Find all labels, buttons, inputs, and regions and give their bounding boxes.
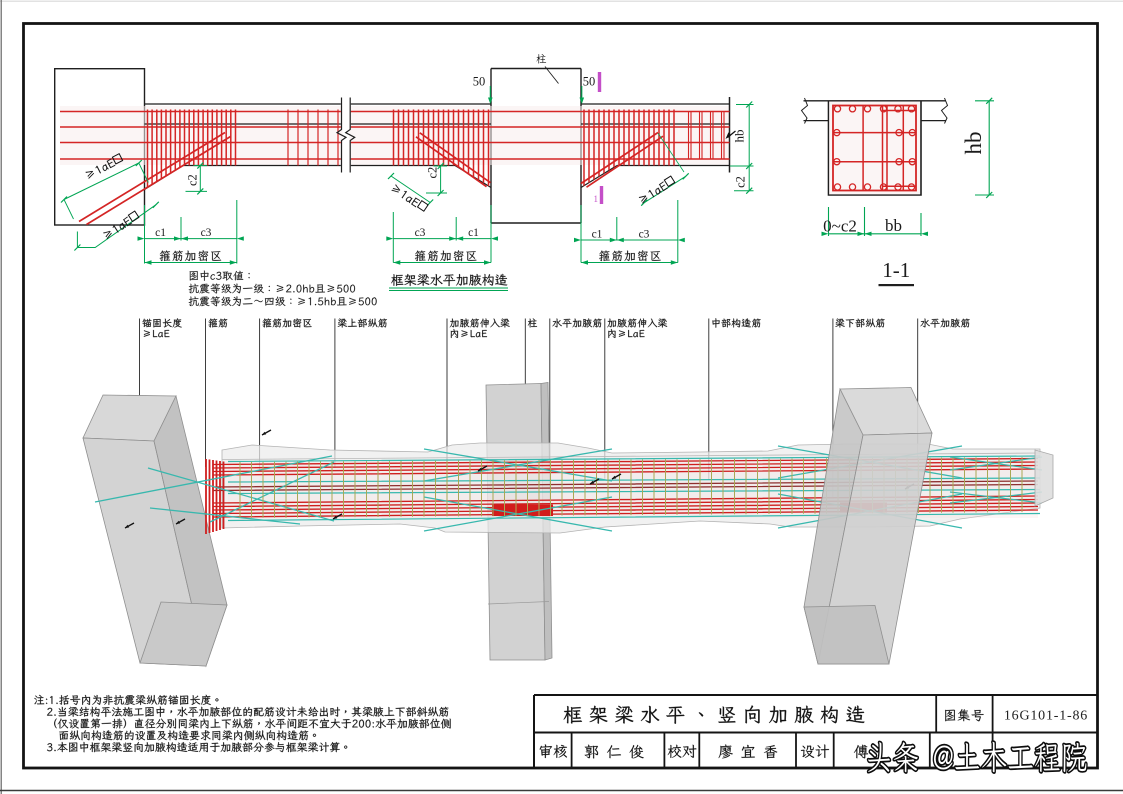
svg-text:c1: c1 bbox=[592, 229, 603, 241]
svg-text:c1: c1 bbox=[155, 227, 166, 239]
svg-text:50: 50 bbox=[473, 75, 486, 89]
svg-text:1: 1 bbox=[594, 194, 599, 204]
svg-text:c3: c3 bbox=[415, 227, 426, 239]
svg-text:hb: hb bbox=[732, 130, 747, 143]
svg-text:0~c2: 0~c2 bbox=[823, 217, 857, 236]
svg-text:hb: hb bbox=[961, 132, 986, 155]
svg-text:c2: c2 bbox=[426, 167, 440, 179]
svg-text:16G101-1-86: 16G101-1-86 bbox=[1004, 709, 1088, 724]
svg-text:1-1: 1-1 bbox=[882, 258, 910, 282]
svg-text:c1: c1 bbox=[468, 227, 479, 239]
svg-text:c3: c3 bbox=[639, 229, 650, 241]
svg-text:50: 50 bbox=[583, 75, 596, 89]
svg-text:c2: c2 bbox=[186, 174, 200, 186]
svg-text:c3: c3 bbox=[201, 227, 212, 239]
svg-text:bb: bb bbox=[885, 216, 902, 235]
svg-text:c2: c2 bbox=[734, 176, 748, 188]
